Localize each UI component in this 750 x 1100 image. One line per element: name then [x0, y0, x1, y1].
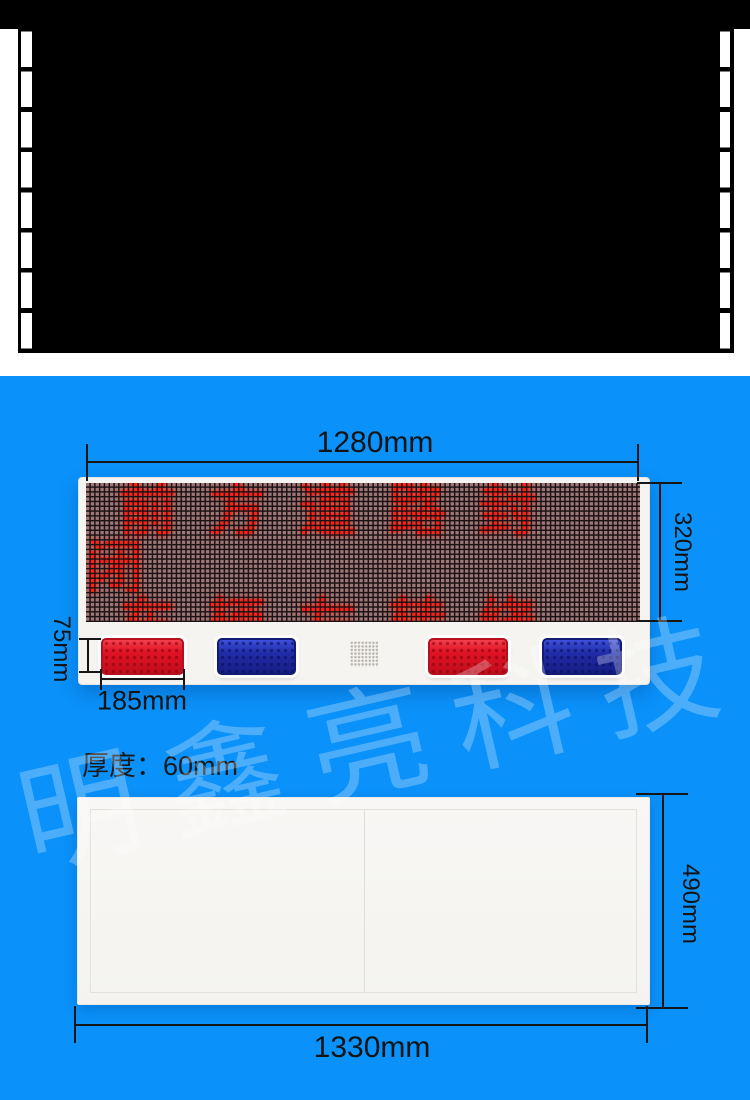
dimension-tick [183, 669, 185, 690]
dimension-tick [636, 1007, 688, 1009]
dimension-line-reflector-width [101, 678, 184, 680]
dimension-tick [86, 444, 88, 481]
dimension-label-reflector-height: 75mm [47, 616, 75, 683]
reflector-red-2 [428, 638, 508, 675]
film-strip-sprocket-holes-left [21, 29, 32, 353]
dimension-label-back-height: 490mm [676, 864, 704, 944]
dimension-tick [79, 671, 101, 673]
dimension-tick [646, 1006, 648, 1043]
thickness-label: 厚度：60mm [82, 744, 238, 783]
dimension-tick [637, 482, 682, 484]
film-strip-sprocket-holes-right [720, 29, 731, 353]
reflector-blue-2 [542, 638, 622, 675]
led-display: 前方道路封闭 车辆左转绕行 [86, 483, 640, 622]
sign-back-panel [77, 797, 650, 1005]
dimension-tick [100, 669, 102, 690]
dimension-label-front-width: 1280mm [317, 426, 434, 460]
dimension-label-reflector-width: 185mm [97, 686, 187, 717]
dimension-line-back-width [75, 1024, 648, 1026]
dimension-label-back-width: 1330mm [314, 1031, 431, 1065]
film-strip-black-frame [18, 29, 734, 353]
dimension-line-back-height [662, 794, 664, 1009]
sign-back-center-divider [364, 809, 366, 993]
dimension-line-front-height [659, 483, 661, 622]
dimension-tick [637, 620, 682, 622]
dimension-line-reflector-height [87, 639, 89, 672]
product-spec-section: 1280mm 前方道路封闭 车辆左转绕行 320mm 75mm 185mm 厚度… [0, 376, 750, 1100]
dimension-tick [74, 1006, 76, 1043]
film-strip-top-bar [0, 0, 750, 29]
led-dot-mask [86, 483, 640, 622]
reflector-blue-1 [217, 638, 296, 675]
dimension-tick [637, 444, 639, 481]
dimension-tick [79, 638, 101, 640]
dimension-line-front-width [87, 461, 638, 463]
film-strip-header [0, 0, 750, 376]
speaker-grille [350, 641, 378, 667]
dimension-tick [636, 793, 688, 795]
dimension-label-front-height: 320mm [668, 512, 696, 592]
reflector-red-1 [101, 638, 184, 675]
